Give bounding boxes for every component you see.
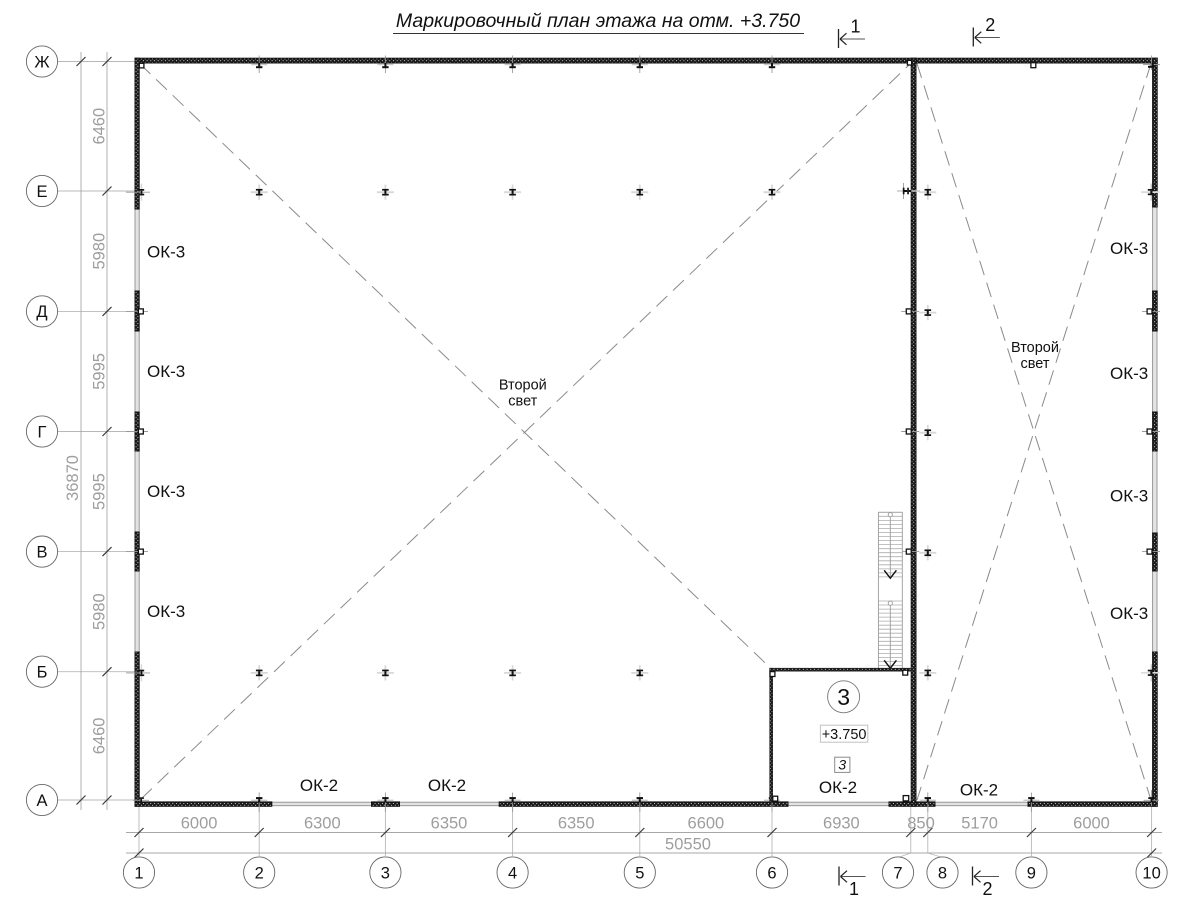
svg-text:10: 10 <box>1142 864 1160 882</box>
svg-text:Маркировочный план этажа на от: Маркировочный план этажа на отм. +3.750 <box>396 10 800 32</box>
svg-text:6460: 6460 <box>91 108 109 145</box>
svg-text:Второй: Второй <box>499 378 547 394</box>
svg-text:8: 8 <box>938 864 947 882</box>
svg-text:5980: 5980 <box>91 593 109 630</box>
svg-text:ОК-3: ОК-3 <box>147 362 185 381</box>
svg-text:Е: Е <box>36 183 47 201</box>
svg-text:6: 6 <box>767 864 776 882</box>
svg-text:ОК-2: ОК-2 <box>300 776 338 795</box>
svg-text:4: 4 <box>508 864 517 882</box>
svg-text:ОК-3: ОК-3 <box>1110 239 1148 258</box>
svg-text:3: 3 <box>837 684 850 710</box>
svg-text:свет: свет <box>508 394 537 410</box>
svg-text:+3.750: +3.750 <box>822 727 867 743</box>
svg-text:5170: 5170 <box>961 815 998 833</box>
svg-text:6930: 6930 <box>823 815 860 833</box>
svg-text:1: 1 <box>134 864 143 882</box>
svg-text:ОК-3: ОК-3 <box>147 482 185 501</box>
svg-text:Ж: Ж <box>34 53 50 71</box>
svg-text:6350: 6350 <box>431 815 468 833</box>
svg-text:Г: Г <box>38 423 47 441</box>
svg-text:1: 1 <box>850 17 860 37</box>
svg-text:850: 850 <box>907 815 935 833</box>
svg-text:3: 3 <box>381 864 390 882</box>
svg-text:2: 2 <box>255 864 264 882</box>
svg-text:свет: свет <box>1020 356 1049 372</box>
svg-text:1: 1 <box>849 879 859 899</box>
svg-text:Второй: Второй <box>1011 340 1059 356</box>
svg-text:В: В <box>36 543 47 561</box>
svg-text:ОК-3: ОК-3 <box>1110 604 1148 623</box>
svg-text:ОК-2: ОК-2 <box>819 778 857 797</box>
svg-text:6600: 6600 <box>688 815 725 833</box>
svg-text:9: 9 <box>1027 864 1036 882</box>
svg-text:5: 5 <box>635 864 644 882</box>
svg-text:6350: 6350 <box>558 815 595 833</box>
svg-text:36870: 36870 <box>64 455 82 501</box>
svg-text:ОК-3: ОК-3 <box>1110 487 1148 506</box>
svg-text:6000: 6000 <box>1073 815 1110 833</box>
svg-text:5995: 5995 <box>91 473 109 510</box>
svg-text:Б: Б <box>37 664 48 682</box>
svg-text:2: 2 <box>982 879 992 899</box>
svg-text:2: 2 <box>985 15 995 35</box>
svg-text:ОК-2: ОК-2 <box>960 781 998 800</box>
svg-text:ОК-3: ОК-3 <box>147 243 185 262</box>
svg-text:3: 3 <box>838 757 846 773</box>
svg-text:ОК-2: ОК-2 <box>428 776 466 795</box>
svg-text:Д: Д <box>36 303 47 321</box>
svg-text:ОК-3: ОК-3 <box>1110 364 1148 383</box>
svg-text:5995: 5995 <box>91 353 109 390</box>
svg-text:А: А <box>36 792 47 810</box>
svg-text:50550: 50550 <box>665 836 711 854</box>
svg-text:7: 7 <box>893 864 902 882</box>
svg-text:6460: 6460 <box>91 718 109 755</box>
svg-text:6300: 6300 <box>304 815 341 833</box>
svg-text:ОК-3: ОК-3 <box>147 602 185 621</box>
svg-text:6000: 6000 <box>181 815 218 833</box>
svg-text:5980: 5980 <box>91 233 109 270</box>
